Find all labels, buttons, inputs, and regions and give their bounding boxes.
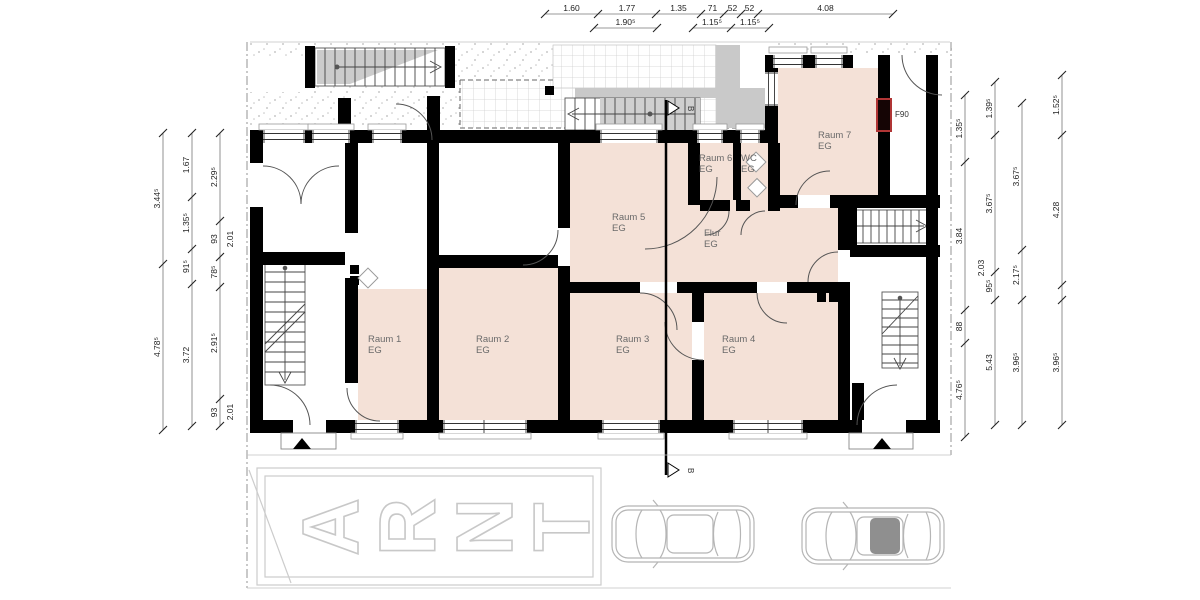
dim-label: 1.15⁵ [702, 17, 722, 27]
parking-letter: N [440, 498, 529, 556]
exterior-stair-top-left [315, 48, 445, 86]
dim-chain: 1.671.35⁵91⁵3.72 [181, 129, 196, 430]
window [736, 124, 764, 143]
dim-chain: 1.35⁵3.84884.76⁵ [954, 91, 969, 441]
dim-chain: 1.601.771.357152524.08 [541, 3, 897, 18]
dim-label-offset: 2.01 [225, 403, 235, 420]
window [259, 124, 309, 143]
parking-letter: A [286, 498, 375, 556]
dim-label: 1.35⁵ [181, 213, 191, 233]
car-2 [802, 502, 944, 570]
dim-label-offset: 2.03 [976, 259, 986, 276]
interior-stair-right [847, 210, 928, 243]
dim-label: 1.39⁵ [984, 98, 994, 118]
dim-chain: 1.52⁵4.283.96⁵ [1051, 71, 1066, 429]
dim-label: 1.15⁵ [740, 17, 760, 27]
dim-label: 93 [209, 234, 219, 244]
dim-label: 3.44⁵ [152, 188, 162, 208]
ramp-line [249, 470, 291, 583]
dim-label: 2.91⁵ [209, 333, 219, 353]
winder-stair-bottom-right [882, 292, 918, 369]
window [729, 420, 807, 439]
dim-label: 3.72 [181, 346, 191, 363]
window [693, 124, 727, 143]
dim-label: 4.08 [817, 3, 834, 13]
f90-label: F90 [895, 110, 909, 119]
parking-letters: ARNT [286, 498, 606, 556]
fire-door-f90: F90 [877, 99, 909, 131]
dim-chain: 1.15⁵1.15⁵ [689, 17, 773, 32]
window [596, 124, 662, 143]
floor-plan-page: F90 B B ARNT Raum 1EGRaum 2EGRaum 3EGRau… [0, 0, 1200, 600]
dim-label: 2.17⁵ [1011, 265, 1021, 285]
dim-label: 3.84 [954, 227, 964, 244]
parking-letter: T [517, 502, 606, 551]
dim-chain: 1.39⁵3.67⁵95⁵5.43 [984, 78, 999, 429]
dim-label: 3.67⁵ [1011, 166, 1021, 186]
window [308, 124, 354, 143]
dim-label: 1.77 [619, 3, 636, 13]
window [368, 124, 406, 143]
window [765, 72, 778, 106]
section-marker-bottom: B [686, 468, 695, 473]
dim-label: 1.60 [563, 3, 580, 13]
dim-chain: 1.90⁵ [590, 17, 661, 32]
dim-label: 91⁵ [181, 260, 191, 273]
dim-label: 88 [954, 322, 964, 332]
dim-label: 5.43 [984, 354, 994, 371]
window [769, 47, 807, 68]
dim-label: 4.76⁵ [954, 380, 964, 400]
dim-chain: 3.67⁵2.17⁵3.96⁵ [1011, 99, 1026, 429]
parking-area: ARNT [249, 468, 944, 585]
winder-stair-bottom-left [265, 263, 305, 385]
dim-label: 3.67⁵ [984, 193, 994, 213]
dim-label: 4.78⁵ [152, 337, 162, 357]
dim-label: 1.67 [181, 156, 191, 173]
dim-label: 3.96⁵ [1051, 352, 1061, 372]
dim-label: 3.96⁵ [1011, 352, 1021, 372]
window [811, 47, 847, 68]
dim-chain: 3.44⁵4.78⁵ [152, 129, 167, 434]
dim-label: 4.28 [1051, 201, 1061, 218]
parking-letter: R [363, 498, 452, 556]
dim-label: 93 [209, 408, 219, 418]
window [439, 420, 531, 439]
dim-label: 1.90⁵ [615, 17, 635, 27]
dim-label: 1.35⁵ [954, 118, 964, 138]
dim-label: 52 [728, 3, 738, 13]
dim-label: 71 [708, 3, 718, 13]
dim-label: 2.29⁵ [209, 167, 219, 187]
dim-label: 95⁵ [984, 280, 994, 293]
dim-label-offset: 2.01 [225, 230, 235, 247]
dim-label: 52 [745, 3, 755, 13]
car-1 [612, 500, 754, 568]
dim-chain: 2.29⁵9378⁵2.91⁵93 [209, 129, 224, 430]
section-marker-top: B [686, 106, 695, 111]
dim-label: 78⁵ [209, 266, 219, 279]
window [351, 420, 403, 439]
dim-label: 1.35 [670, 3, 687, 13]
dim-label: 1.52⁵ [1051, 95, 1061, 115]
window [598, 420, 664, 439]
floor-plan-drawing: F90 B B ARNT Raum 1EGRaum 2EGRaum 3EGRau… [0, 0, 1200, 600]
room-label: WCEG [741, 153, 757, 175]
car-roof-panel [870, 518, 900, 554]
